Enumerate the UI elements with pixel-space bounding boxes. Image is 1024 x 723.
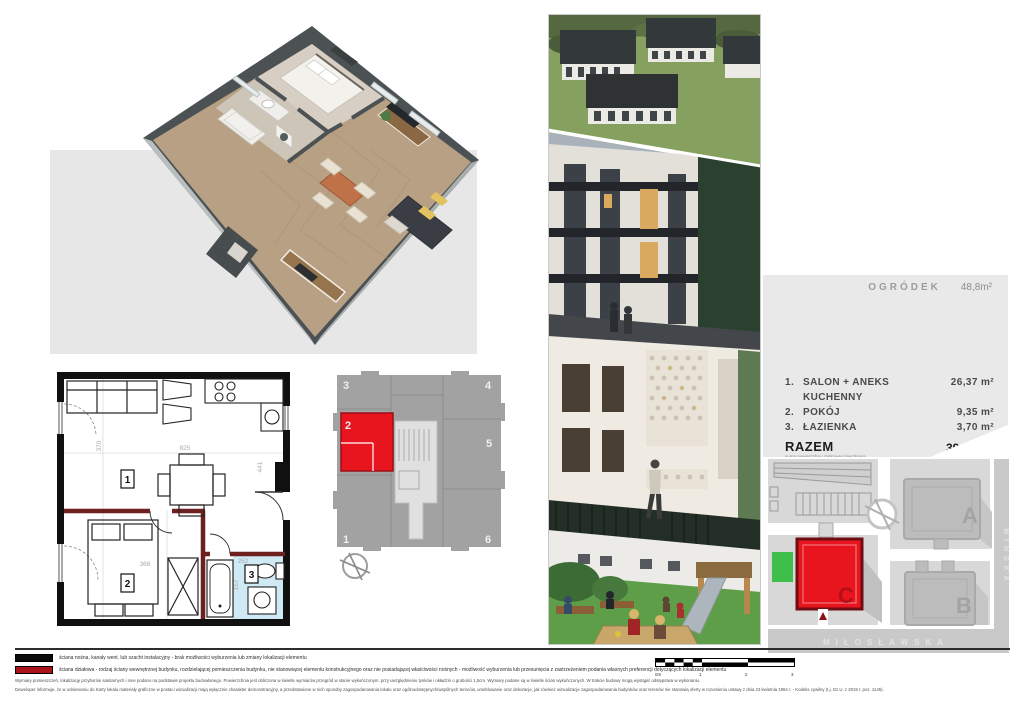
keyplan-floor-locator: 3 4 2 5 1 6: [333, 371, 505, 583]
toilet-symbol: [255, 563, 284, 579]
isometric-3d-floorplan: [140, 20, 480, 350]
plant: [381, 111, 391, 121]
room-area-list: 1. SALON + ANEKS KUCHENNY 26,37 m² 2. PO…: [785, 375, 994, 459]
svg-text:441: 441: [257, 461, 264, 472]
north-arrow-compass-icon: [340, 553, 370, 580]
floorplan-2d: 1 2 3 825 441 370 368 252 157: [55, 370, 295, 628]
area-row: 2. POKÓJ 9,35 m²: [785, 405, 994, 420]
red-wall-swatch: [15, 666, 53, 674]
svg-text:5: 5: [486, 438, 492, 450]
svg-text:1: 1: [343, 534, 349, 546]
svg-text:B: B: [956, 593, 972, 618]
total-label: RAZEM: [785, 441, 866, 453]
svg-text:825: 825: [180, 445, 191, 452]
svg-text:2: 2: [345, 420, 351, 432]
scale-bar-cells: [656, 659, 795, 667]
scale-tick-labels: 0m 1 2 3: [655, 672, 795, 678]
photo-evening-facade: [548, 132, 761, 354]
photo-collage: [548, 14, 761, 645]
svg-text:4: 4: [485, 380, 492, 392]
apartment-info-card: OGRÓDEK 48,8m² 1. SALON + ANEKS KUCHENNY…: [763, 275, 1008, 457]
svg-text:3: 3: [249, 570, 255, 581]
apartment-card-page: 1 2 3 825 441 370 368 252 157: [0, 0, 1024, 723]
washer-symbol: [248, 587, 276, 614]
svg-text:370: 370: [96, 440, 103, 451]
svg-text:C: C: [838, 583, 854, 608]
building-c-highlighted: C: [797, 539, 862, 609]
black-wall-swatch: [15, 654, 53, 662]
bathtub-symbol: [207, 560, 233, 617]
disclaimer-line-1: Wymiary pomieszczeń, lokalizację przybor…: [15, 678, 1010, 683]
photo-pattern-wall: [548, 336, 761, 554]
svg-text:252: 252: [238, 558, 249, 565]
svg-text:368: 368: [140, 561, 151, 568]
street-bottom-label: MIŁOSŁAWSKA: [823, 638, 949, 647]
bottom-divider: [15, 648, 1010, 650]
street-right-label: MIŃSKA: [1002, 528, 1011, 586]
legend-row-load-bearing: ściana nośna, kanały went. lub szacht in…: [15, 653, 1010, 662]
total-value: 39,42 m²: [946, 441, 994, 455]
garden-value: 48,8m²: [961, 282, 992, 293]
legend-row-partition: ściana działowa - rodzaj ściany wewnętrz…: [15, 665, 1010, 674]
svg-text:6: 6: [485, 534, 491, 546]
svg-text:1: 1: [125, 475, 131, 486]
svg-text:3: 3: [343, 380, 349, 392]
garden-row: OGRÓDEK 48,8m²: [868, 282, 992, 293]
svg-text:A: A: [962, 503, 978, 528]
site-location-map: A B C MIŁOSŁAWSKA MIŃSKA: [766, 457, 1011, 653]
green-area: [772, 552, 793, 582]
building-a: A: [904, 479, 980, 549]
photo-playground: [548, 530, 761, 645]
legend: ściana nośna, kanały went. lub szacht in…: [15, 653, 1010, 692]
area-row: 3. ŁAZIENKA 3,70 m²: [785, 420, 994, 435]
scale-bar: 0m 1 2 3: [655, 654, 795, 678]
area-row: 1. SALON + ANEKS KUCHENNY 26,37 m²: [785, 375, 994, 405]
garden-label: OGRÓDEK: [868, 282, 941, 293]
disclaimer-line-2: Deweloper informuje, że w odniesieniu do…: [15, 687, 1010, 692]
svg-text:157: 157: [233, 579, 240, 590]
svg-text:2: 2: [125, 579, 131, 590]
